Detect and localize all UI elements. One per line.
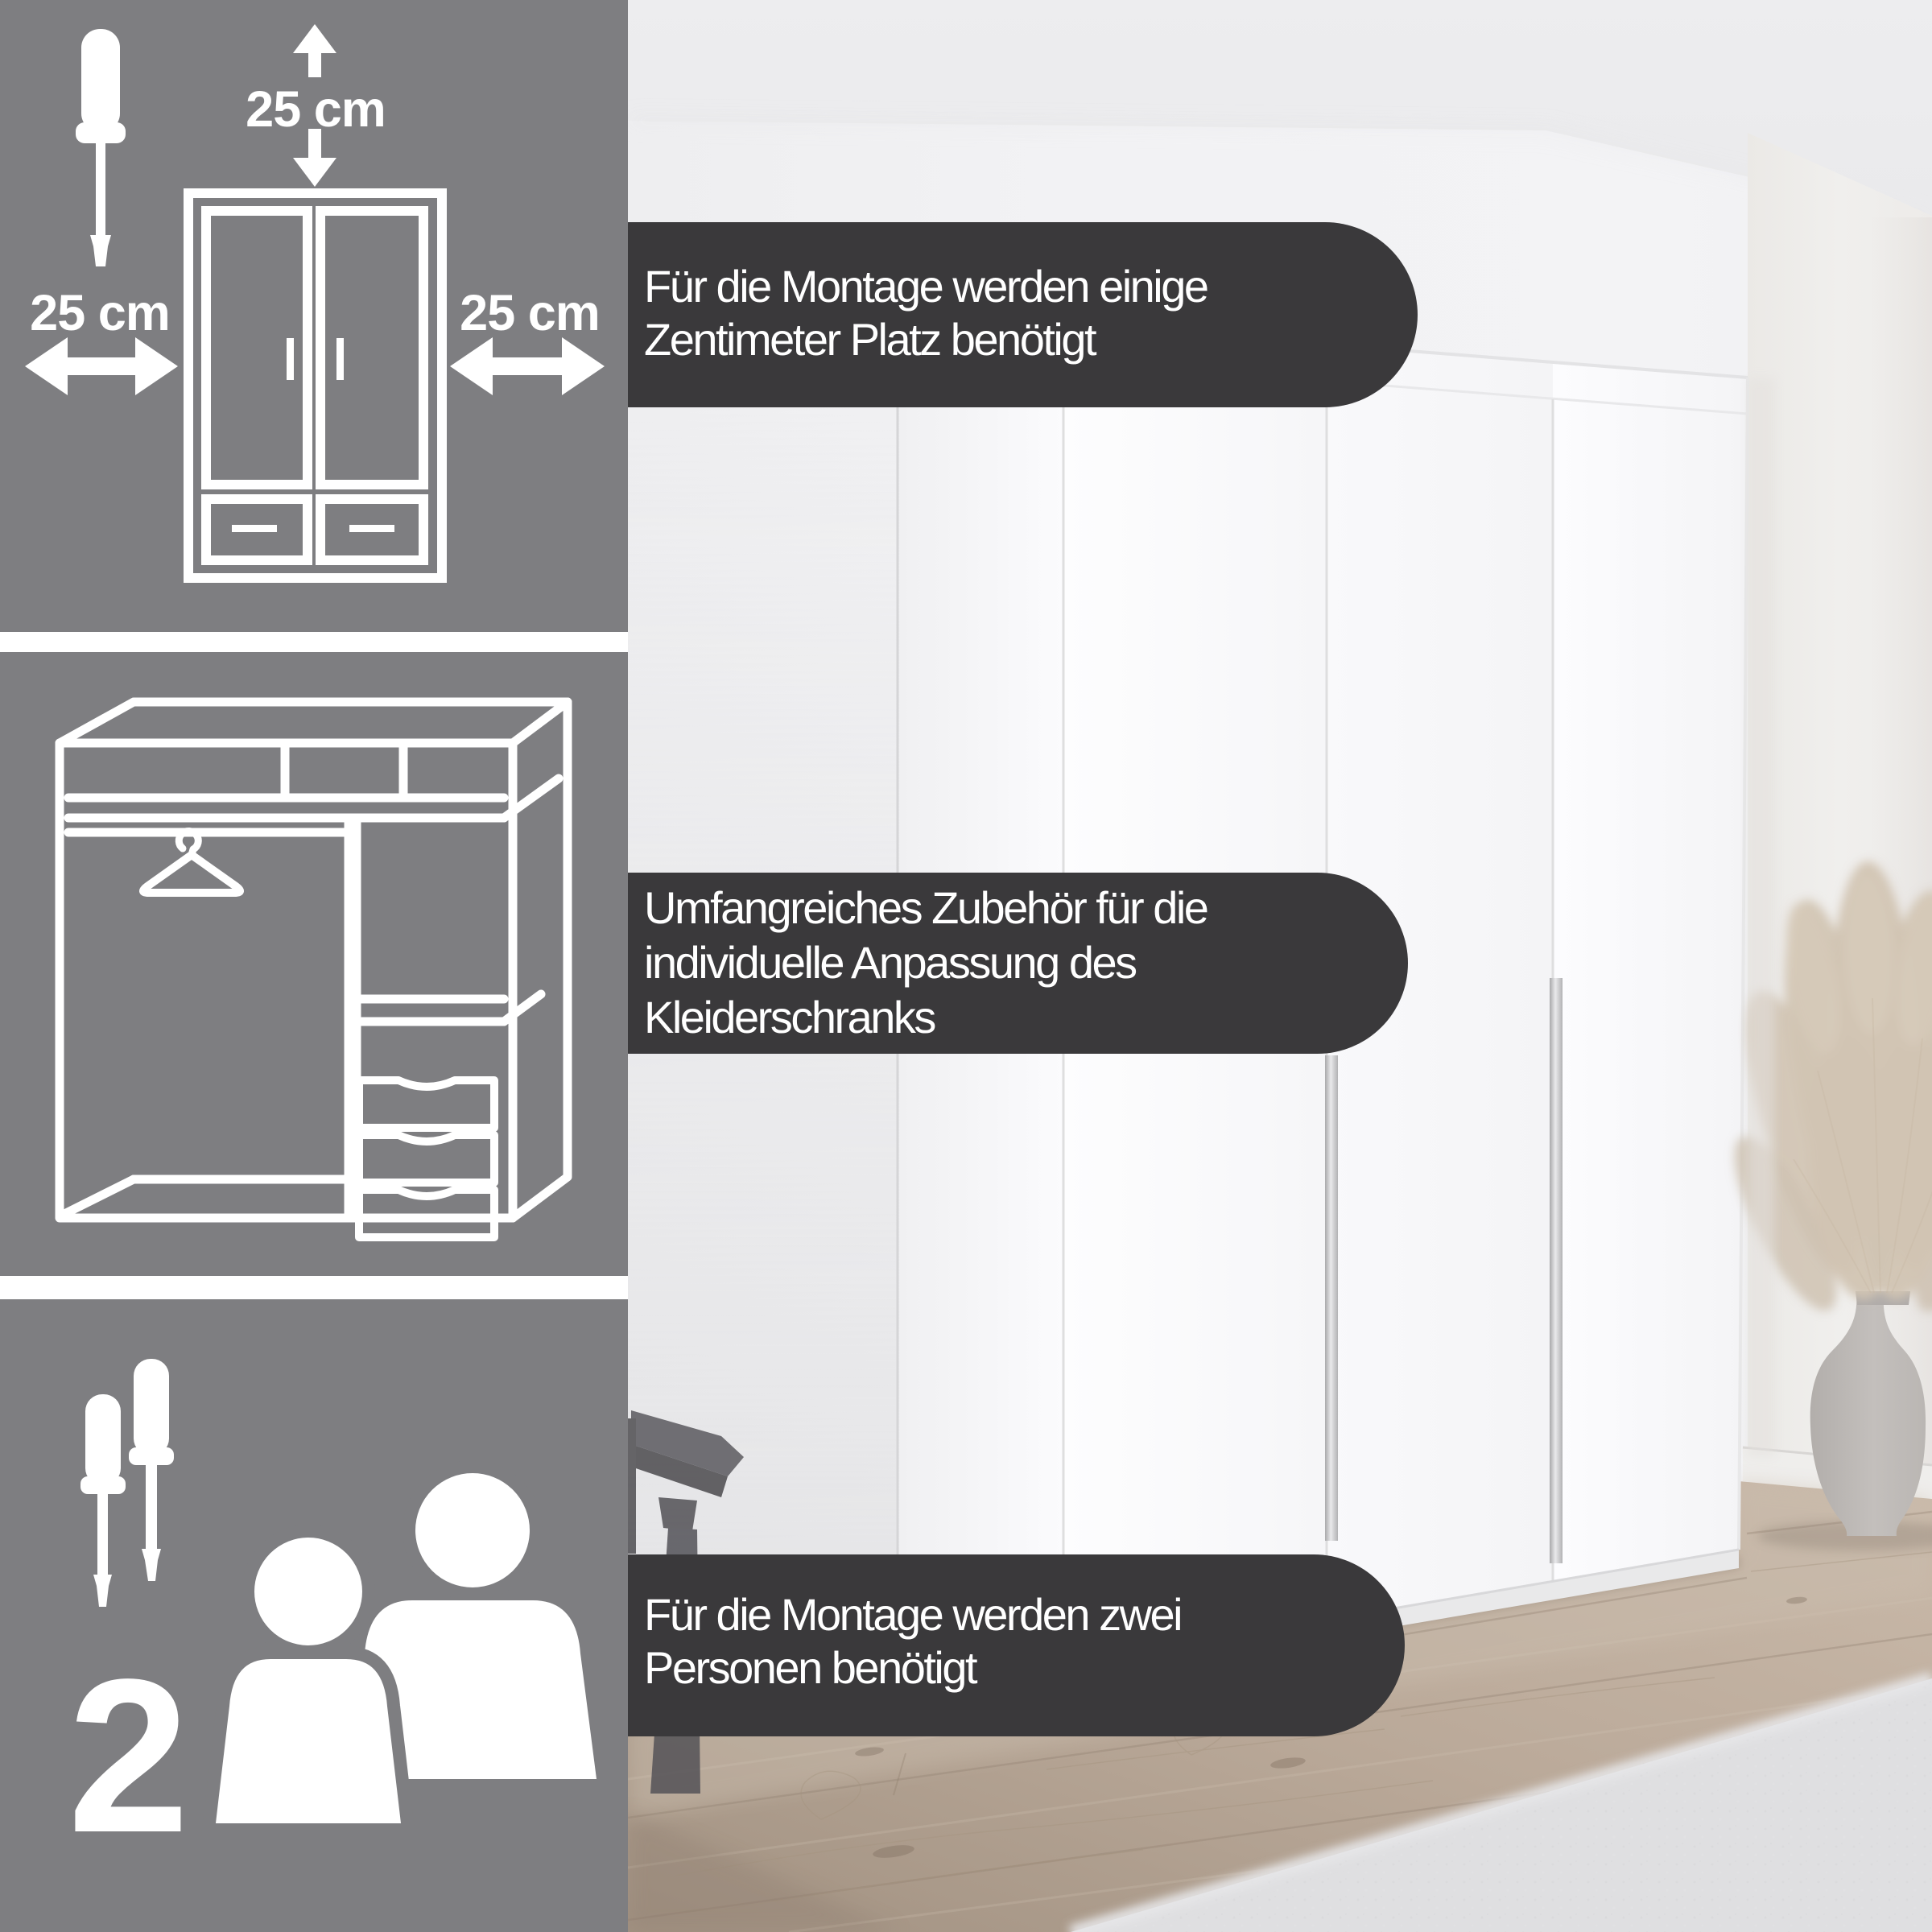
svg-text:25 cm: 25 cm bbox=[30, 285, 170, 341]
svg-text:2: 2 bbox=[68, 1633, 189, 1878]
svg-text:25 cm: 25 cm bbox=[460, 285, 600, 341]
